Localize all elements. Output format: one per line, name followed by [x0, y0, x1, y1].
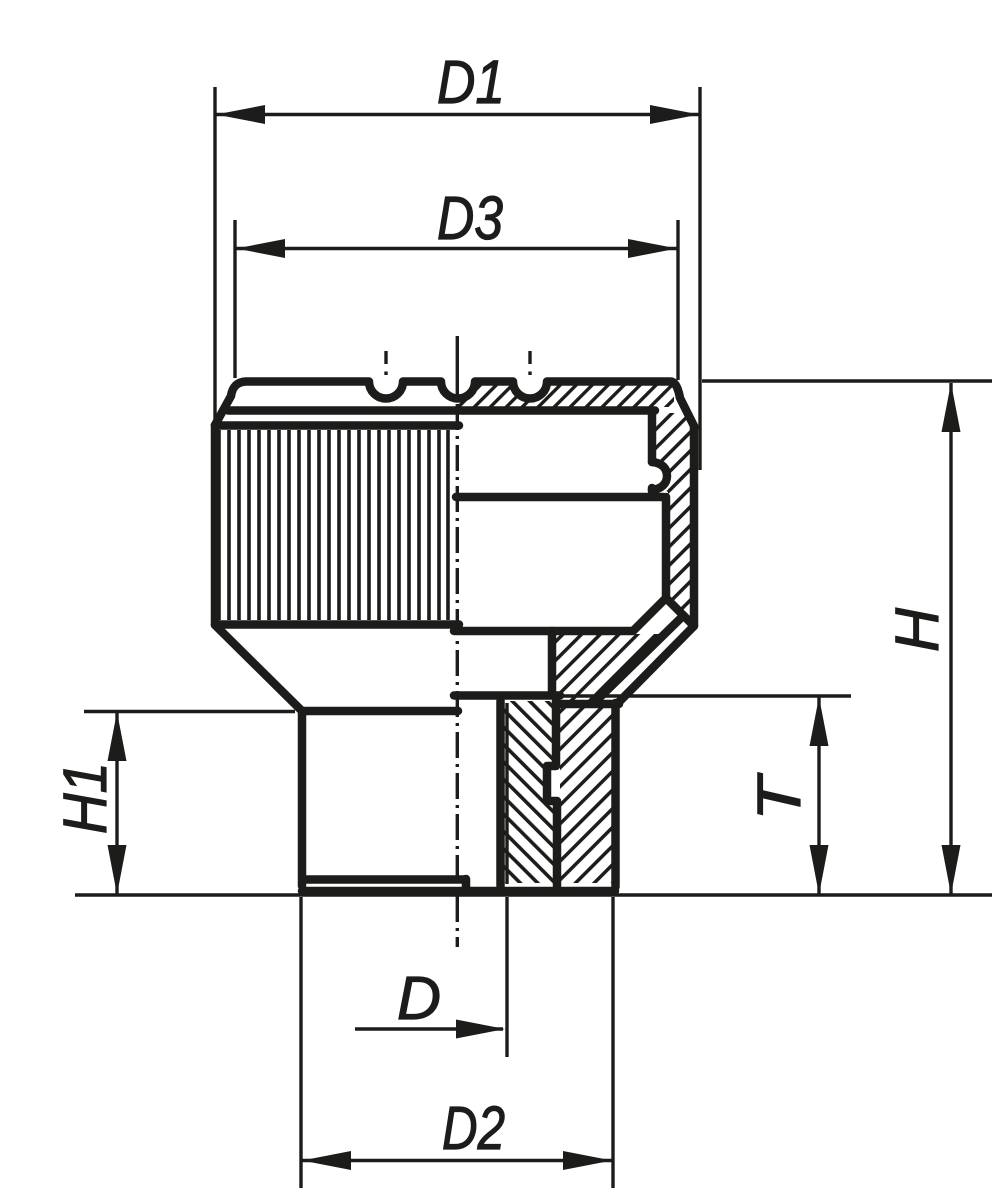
svg-text:D2: D2	[442, 1094, 505, 1162]
svg-text:H: H	[883, 607, 951, 652]
svg-text:D3: D3	[437, 184, 503, 252]
svg-text:T: T	[745, 773, 813, 821]
svg-text:D: D	[397, 964, 441, 1032]
svg-text:H1: H1	[51, 762, 119, 834]
svg-text:D1: D1	[437, 48, 505, 116]
